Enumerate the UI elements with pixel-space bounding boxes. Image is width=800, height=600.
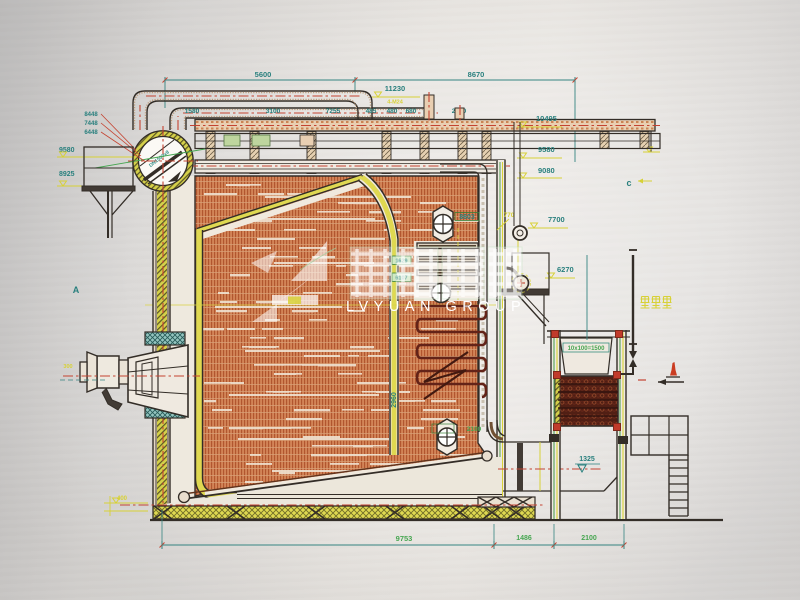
svg-text:LVYUAN GROUP: LVYUAN GROUP [346,299,526,315]
